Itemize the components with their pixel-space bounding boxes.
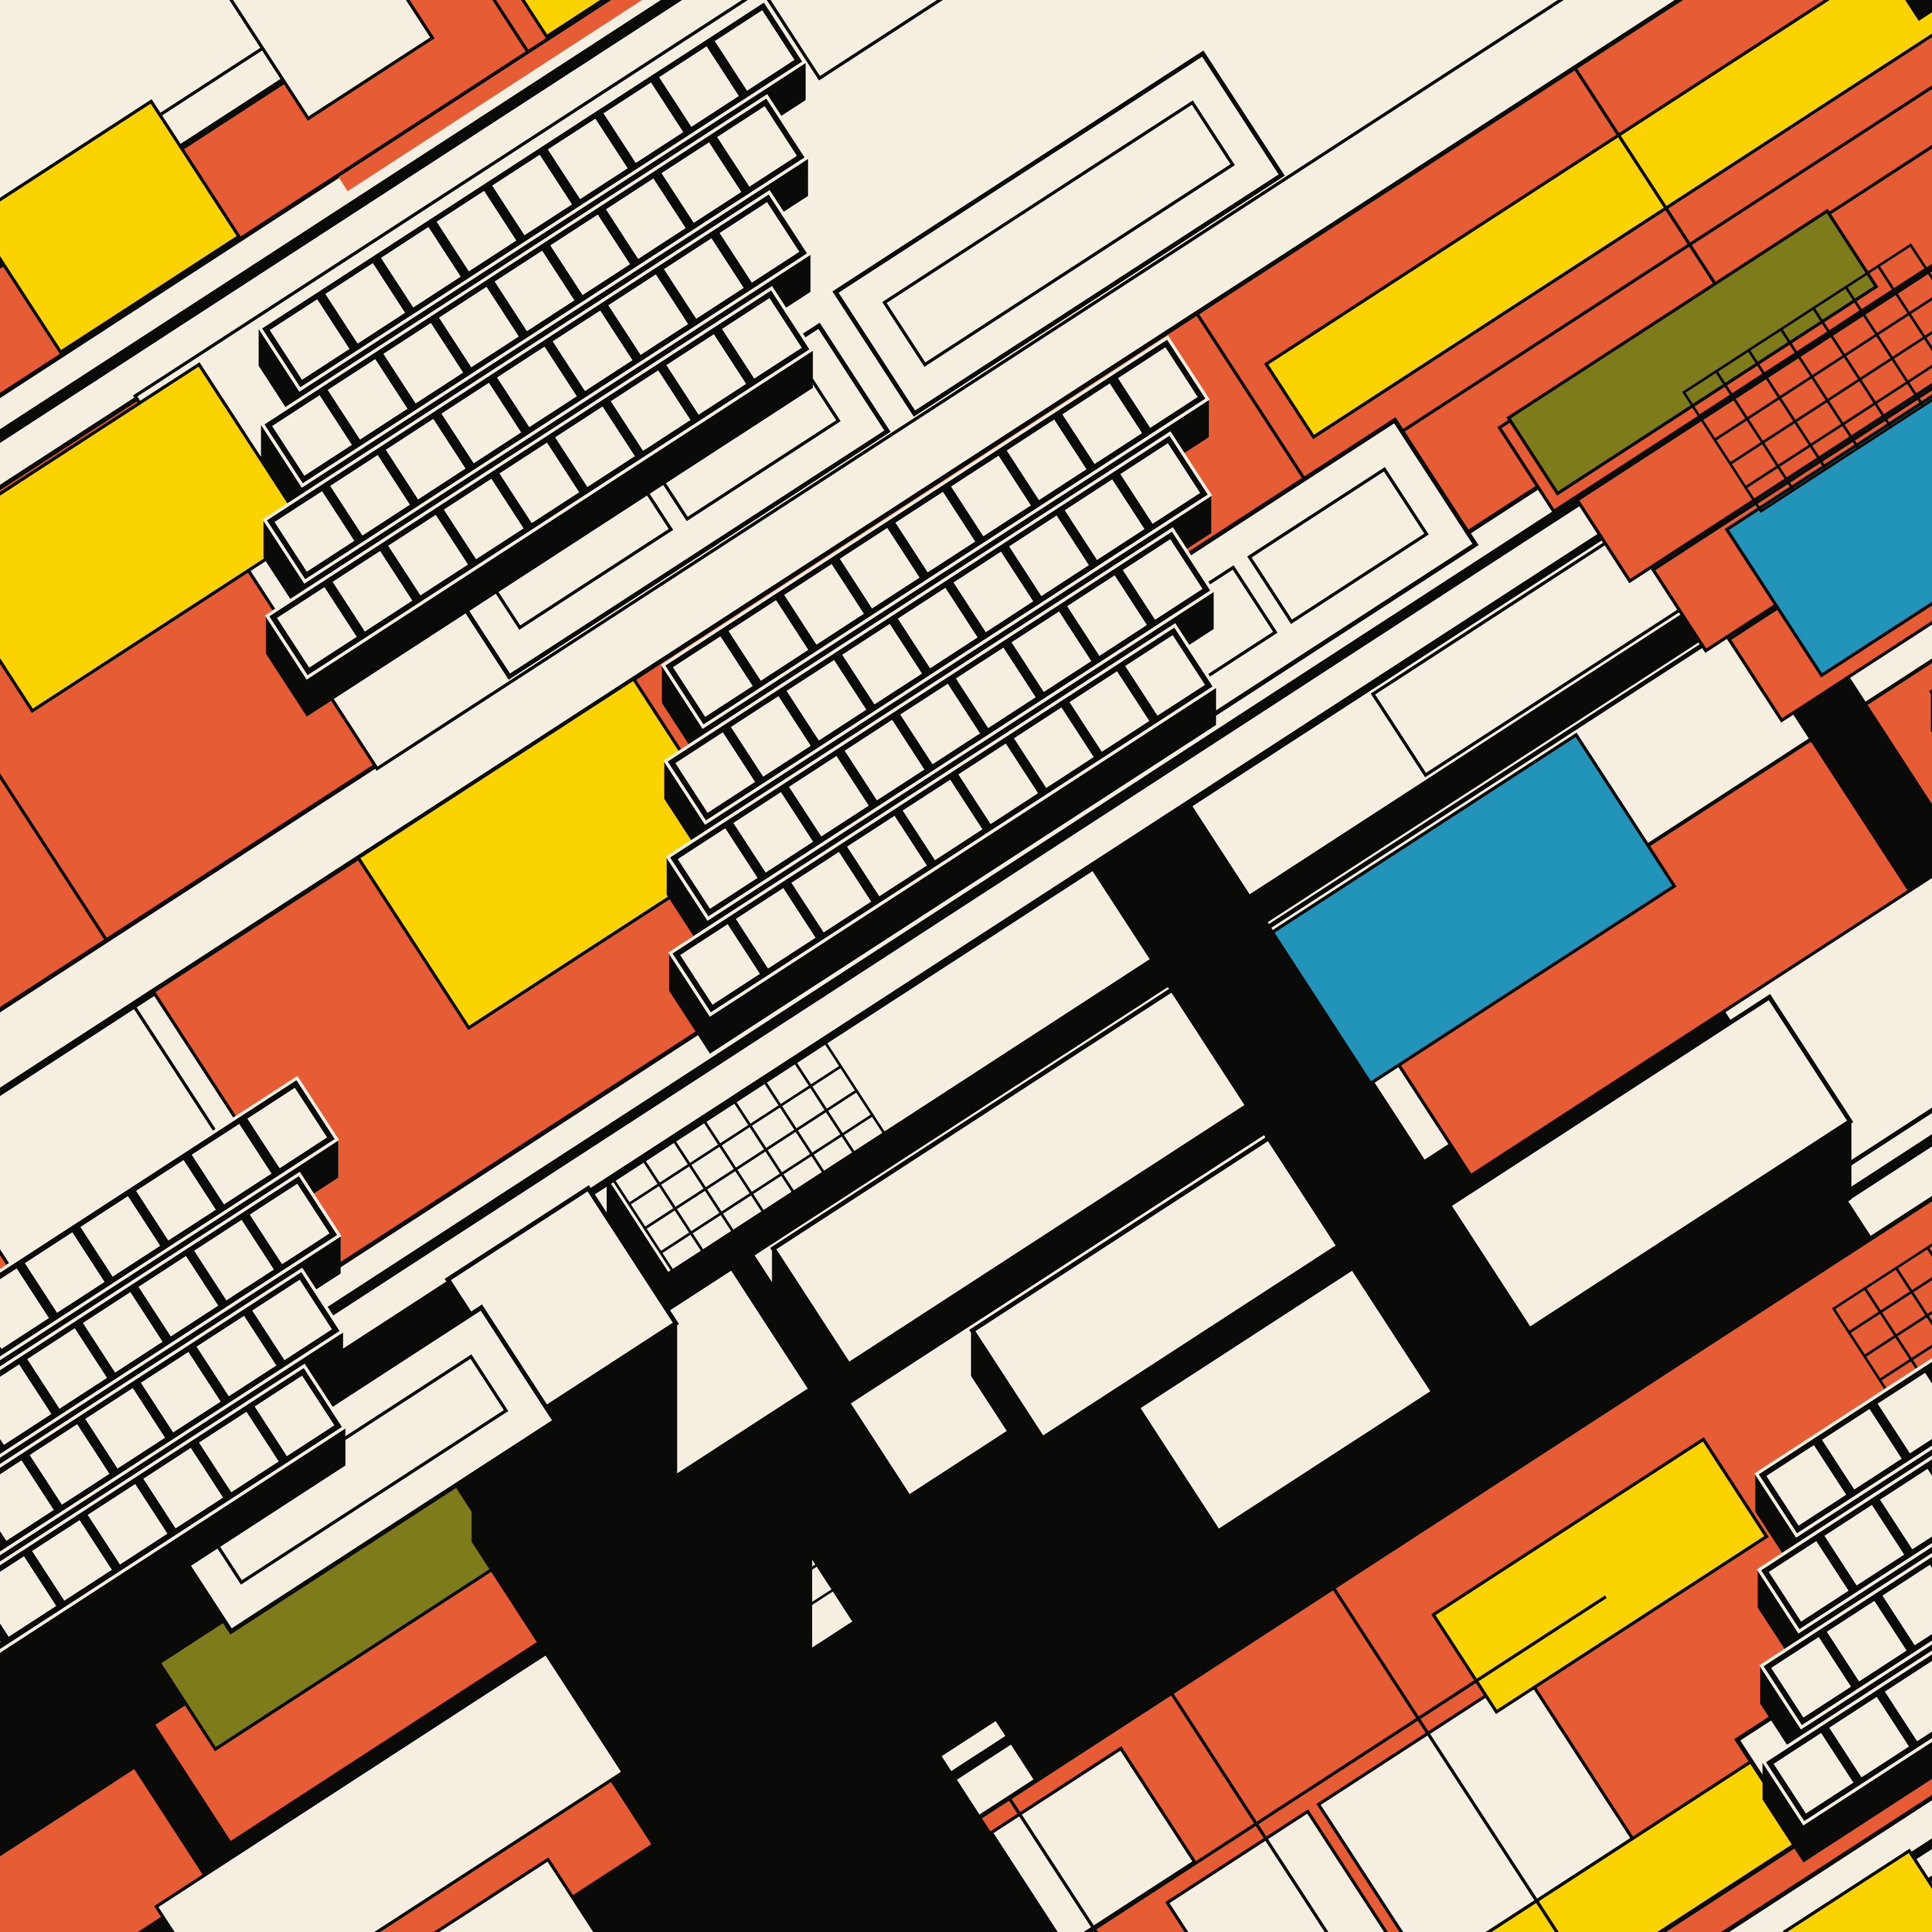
- artwork-svg: [0, 0, 1932, 1932]
- abstract-artwork-canvas: [0, 0, 1932, 1932]
- artwork-stage: [0, 0, 1932, 1932]
